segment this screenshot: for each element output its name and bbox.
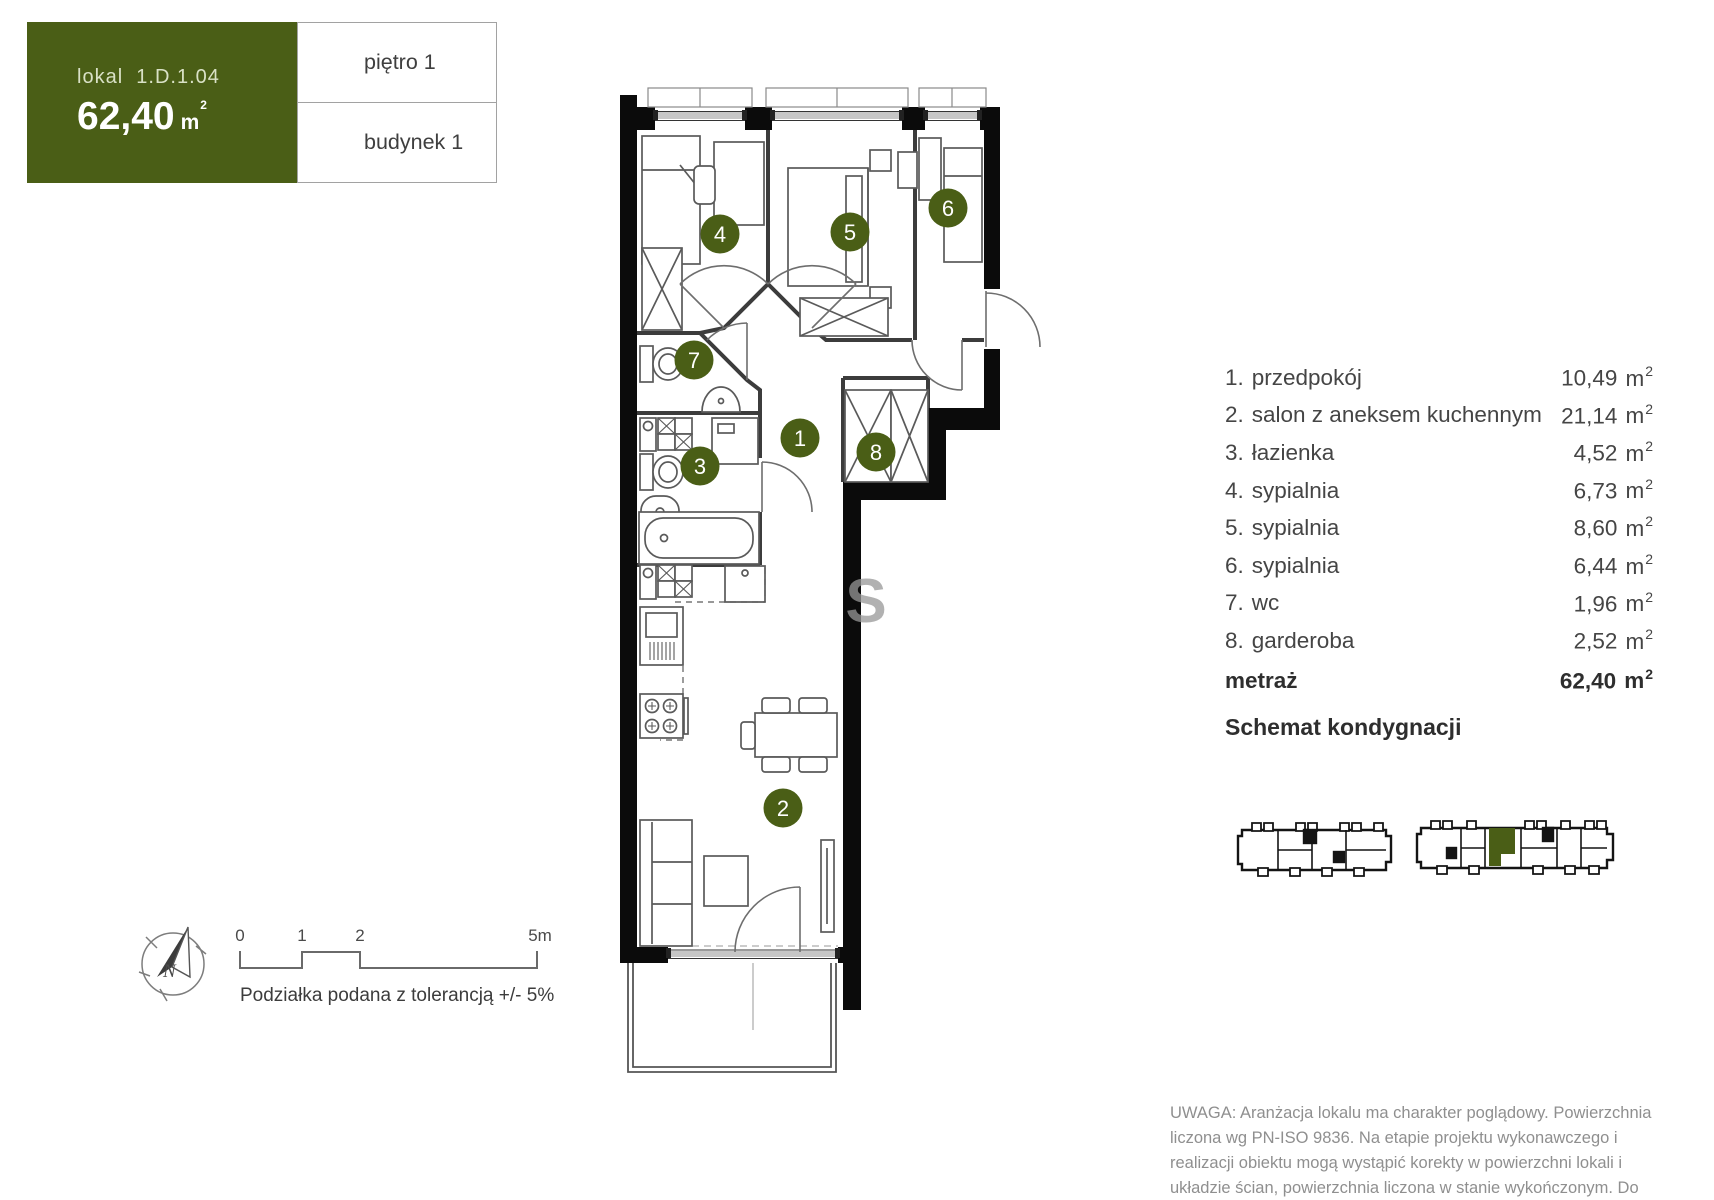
room-badge-3: 3 <box>681 447 720 486</box>
room5-wardrobe <box>800 298 888 336</box>
lokal-value: 1.D.1.04 <box>136 66 220 88</box>
washing-machine <box>712 418 758 464</box>
legend-row: 4.sypialnia6,73m2 <box>1225 472 1652 510</box>
unit-meta-card: piętro 1 budynek 1 <box>297 22 497 183</box>
room-badge-8: 8 <box>857 433 896 472</box>
building-schematic-2 <box>1417 821 1613 874</box>
svg-text:6: 6 <box>942 196 954 221</box>
unit-area: 62,40m2 <box>77 95 297 139</box>
floor-cell: piętro 1 <box>298 23 496 103</box>
room-badge-7: 7 <box>675 341 714 380</box>
svg-text:7: 7 <box>688 348 700 373</box>
utility-cluster-bath <box>640 418 692 451</box>
building-schematics <box>1238 821 1613 876</box>
svg-text:5m: 5m <box>528 926 552 945</box>
legend-row: 2.salon z aneksem kuchennym21,14m2 <box>1225 397 1652 435</box>
legend-row: 5.sypialnia8,60m2 <box>1225 509 1652 547</box>
room-legend: 1.przedpokój10,49m2 2.salon z aneksem ku… <box>1225 359 1652 699</box>
room6-desk <box>898 138 941 200</box>
room4-wardrobe <box>642 248 682 330</box>
building-schematic-1 <box>1238 823 1391 876</box>
compass: N <box>139 927 206 1001</box>
coffee-table <box>704 856 748 906</box>
north-label: N <box>162 961 177 982</box>
dining-table <box>741 698 837 772</box>
kitchen-stove <box>640 694 688 738</box>
watermark: S <box>845 567 886 636</box>
balcony <box>628 963 836 1072</box>
wc-sink <box>702 387 740 412</box>
svg-text:8: 8 <box>870 440 882 465</box>
room-badge-6: 6 <box>929 189 968 228</box>
lokal-label: lokal <box>77 66 123 88</box>
legend-row: 1.przedpokój10,49m2 <box>1225 359 1652 397</box>
bathtub <box>639 512 759 564</box>
scale-bar: 0 1 2 5m Podziałka podana z tolerancją +… <box>235 926 554 1006</box>
building-cell: budynek 1 <box>298 103 496 182</box>
svg-text:1: 1 <box>297 926 306 945</box>
room-badge-4: 4 <box>701 215 740 254</box>
room4-bed <box>642 136 700 264</box>
legend-row: 7.wc1,96m2 <box>1225 585 1652 623</box>
legend-total-row: metraż62,40m2 <box>1225 662 1652 700</box>
svg-text:5: 5 <box>844 220 856 245</box>
room-badge-2: 2 <box>764 789 803 828</box>
unit-header-card: lokal 1.D.1.04 62,40m2 <box>27 22 297 183</box>
sofa <box>640 820 692 946</box>
disclaimer-text: UWAGA: Aranżacja lokalu ma charakter pog… <box>1170 1101 1685 1200</box>
utility-cluster-kitchen <box>640 565 692 599</box>
unit-id: lokal 1.D.1.04 <box>77 66 297 89</box>
tv <box>821 840 834 932</box>
room4-desk <box>694 142 764 225</box>
legend-row: 6.sypialnia6,44m2 <box>1225 547 1652 585</box>
floor-plan: S 1 2 3 4 5 6 7 8 <box>620 88 1040 1072</box>
kitchen-fridge <box>640 607 683 665</box>
page: S 1 2 3 4 5 6 7 8 N 0 1 <box>0 0 1714 1200</box>
scale-note: Podziałka podana z tolerancją +/- 5% <box>240 985 554 1006</box>
legend-row: 3.łazienka4,52m2 <box>1225 434 1652 472</box>
room-badge-5: 5 <box>831 213 870 252</box>
svg-text:4: 4 <box>714 222 726 247</box>
svg-text:2: 2 <box>777 796 789 821</box>
schema-heading: Schemat kondygnacji <box>1225 714 1461 741</box>
svg-text:2: 2 <box>355 926 364 945</box>
svg-text:1: 1 <box>794 426 806 451</box>
svg-text:3: 3 <box>694 454 706 479</box>
kitchen-sink <box>725 566 765 602</box>
room-badge-1: 1 <box>781 419 820 458</box>
legend-row: 8.garderoba2,52m2 <box>1225 622 1652 660</box>
svg-text:0: 0 <box>235 926 244 945</box>
plan-furniture <box>639 136 982 946</box>
bath-toilet <box>640 454 683 490</box>
